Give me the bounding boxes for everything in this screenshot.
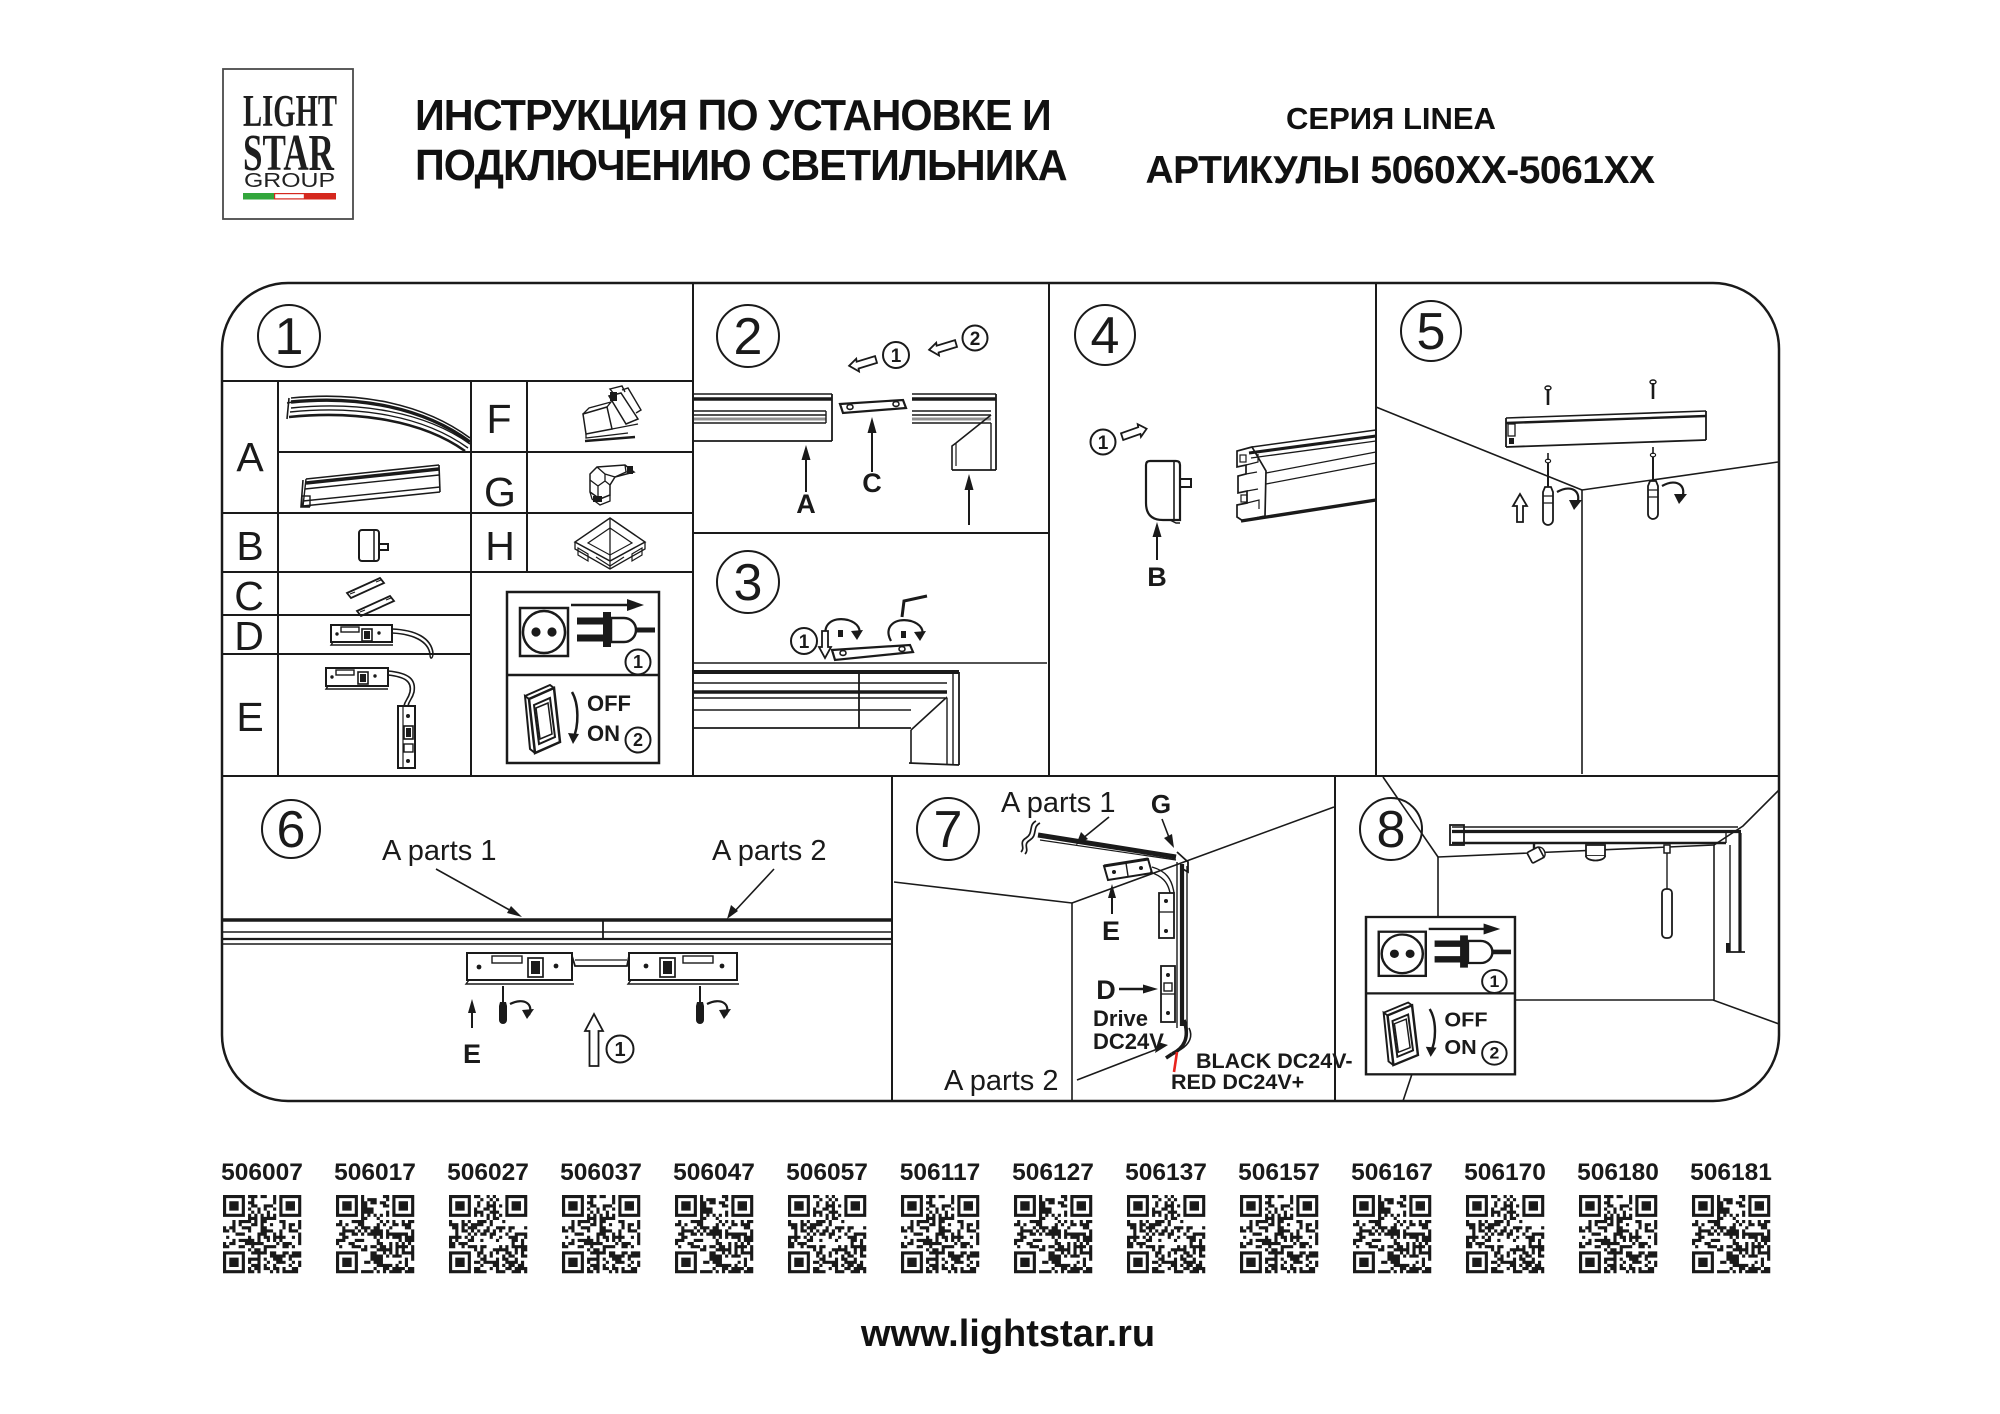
svg-text:506180: 506180 (1577, 1159, 1659, 1186)
svg-text:506037: 506037 (560, 1159, 642, 1186)
svg-text:506007: 506007 (221, 1159, 303, 1186)
svg-text:506117: 506117 (900, 1159, 980, 1186)
svg-text:506167: 506167 (1351, 1159, 1433, 1186)
svg-text:506057: 506057 (786, 1159, 868, 1186)
svg-text:506017: 506017 (334, 1159, 416, 1186)
svg-text:506137: 506137 (1125, 1159, 1207, 1186)
svg-text:506157: 506157 (1238, 1159, 1320, 1186)
svg-text:506127: 506127 (1012, 1159, 1094, 1186)
svg-text:506181: 506181 (1690, 1159, 1772, 1186)
svg-text:506170: 506170 (1464, 1159, 1546, 1186)
svg-text:506047: 506047 (673, 1159, 755, 1186)
svg-text:506027: 506027 (447, 1159, 529, 1186)
